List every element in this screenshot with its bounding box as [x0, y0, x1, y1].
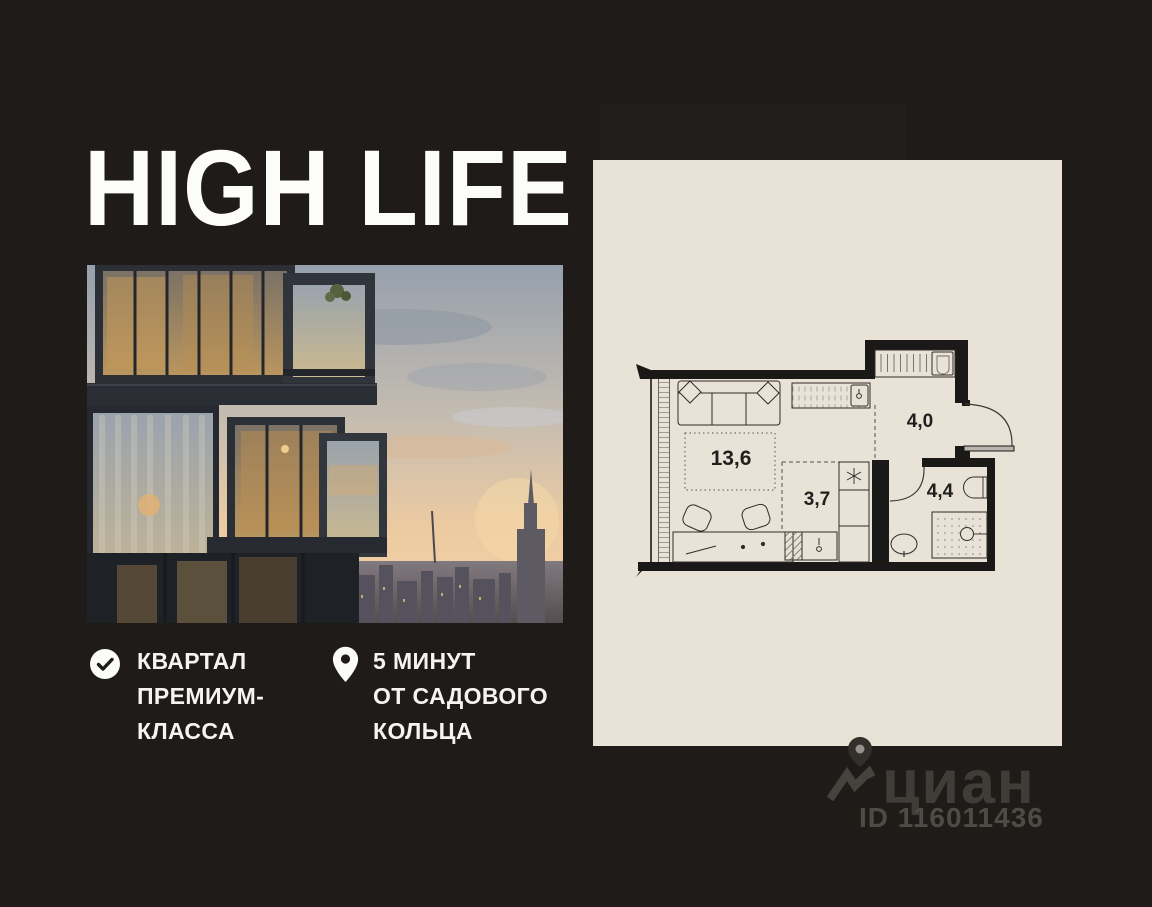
room-label-bathroom: 4,4 — [927, 481, 954, 502]
room-label-living: 13,6 — [711, 447, 752, 470]
feature-line: КЛАССА — [137, 714, 264, 749]
chair — [681, 503, 714, 534]
feature-line: КВАРТАЛ — [137, 644, 264, 679]
brand-logo: HIGH LIFE — [84, 134, 573, 242]
wardrobe — [875, 350, 955, 377]
floor-plan: 13,6 3,7 4,0 4,4 — [593, 160, 1062, 746]
window-wall — [651, 370, 670, 562]
counter — [792, 383, 870, 408]
room-label-kitchen: 3,7 — [804, 489, 830, 510]
listing-id: ID 116011436 — [859, 803, 1044, 833]
feature-premium-class: КВАРТАЛ ПРЕМИУМ- КЛАССА — [89, 648, 264, 749]
location-pin-icon — [332, 646, 359, 688]
feature-location-text: 5 МИНУТ ОТ САДОВОГО КОЛЬЦА — [373, 644, 548, 749]
entrance-door — [964, 404, 1014, 451]
sofa — [678, 381, 780, 425]
chair — [740, 503, 772, 532]
feature-line: ОТ САДОВОГО — [373, 679, 548, 714]
room-label-hallway: 4,0 — [907, 411, 933, 432]
feature-line: ПРЕМИУМ- — [137, 679, 264, 714]
floor-plan-panel: 13,6 3,7 4,0 4,4 — [593, 160, 1062, 746]
glass-building — [87, 265, 387, 623]
building-photo — [87, 265, 563, 623]
building-photo-illustration — [87, 265, 563, 623]
listing-card: HIGH LIFE — [0, 0, 1152, 907]
feature-line: 5 МИНУТ — [373, 644, 548, 679]
feature-premium-text: КВАРТАЛ ПРЕМИУМ- КЛАССА — [137, 644, 264, 749]
check-circle-icon — [89, 648, 121, 685]
desk — [673, 532, 793, 562]
bathroom-door-arc — [890, 467, 924, 501]
feature-location: 5 МИНУТ ОТ САДОВОГО КОЛЬЦА — [332, 646, 548, 749]
feature-line: КОЛЬЦА — [373, 714, 548, 749]
cian-pin-icon — [824, 735, 880, 808]
panel-shadow-artifact — [600, 104, 905, 161]
